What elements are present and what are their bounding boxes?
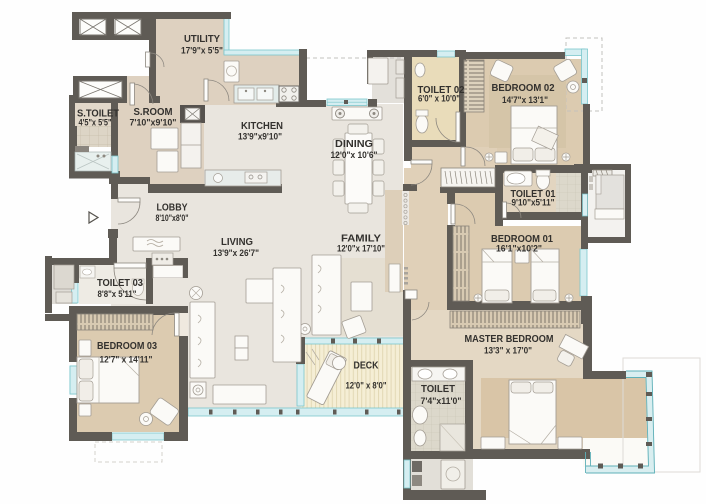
svg-text:6'0" x 10'0": 6'0" x 10'0" — [418, 94, 460, 104]
svg-text:8'10"x8'0": 8'10"x8'0" — [156, 213, 189, 223]
svg-text:7'10"x9'10": 7'10"x9'10" — [130, 118, 177, 128]
svg-text:LIVING: LIVING — [221, 236, 253, 248]
svg-text:DECK: DECK — [354, 360, 379, 372]
svg-text:DINING: DINING — [335, 138, 373, 150]
svg-text:8'8"x 5'11": 8'8"x 5'11" — [98, 289, 137, 299]
svg-text:13'9"x 26'7": 13'9"x 26'7" — [213, 248, 259, 258]
svg-text:BEDROOM 02: BEDROOM 02 — [492, 82, 555, 94]
svg-text:13'9"x9'10": 13'9"x9'10" — [238, 132, 282, 142]
svg-text:S.ROOM: S.ROOM — [134, 106, 173, 118]
svg-text:14'7"x 13'1": 14'7"x 13'1" — [502, 95, 548, 105]
svg-text:12'0"x 17'10": 12'0"x 17'10" — [337, 244, 385, 254]
svg-text:13'3" x 17'0": 13'3" x 17'0" — [484, 346, 532, 356]
svg-text:12'0" x 8'0": 12'0" x 8'0" — [346, 381, 387, 391]
svg-text:TOILET: TOILET — [421, 383, 456, 395]
svg-text:9'10"x5'11": 9'10"x5'11" — [512, 198, 555, 208]
svg-text:16'1"x10'2": 16'1"x10'2" — [496, 244, 542, 254]
svg-text:UTILITY: UTILITY — [184, 33, 220, 45]
svg-text:12'7" x 14'11": 12'7" x 14'11" — [100, 355, 153, 365]
svg-text:12'0"x 10'6": 12'0"x 10'6" — [331, 150, 378, 160]
svg-text:4'5"x 5'5": 4'5"x 5'5" — [79, 118, 112, 128]
svg-text:KITCHEN: KITCHEN — [241, 120, 283, 132]
svg-text:MASTER BEDROOM: MASTER BEDROOM — [465, 333, 554, 345]
svg-text:7'4"x11'0": 7'4"x11'0" — [421, 396, 462, 406]
svg-text:LOBBY: LOBBY — [157, 202, 188, 214]
svg-text:17'9"x 5'5": 17'9"x 5'5" — [181, 46, 223, 56]
svg-text:TOILET 03: TOILET 03 — [97, 277, 143, 289]
svg-text:BEDROOM 03: BEDROOM 03 — [97, 340, 157, 352]
